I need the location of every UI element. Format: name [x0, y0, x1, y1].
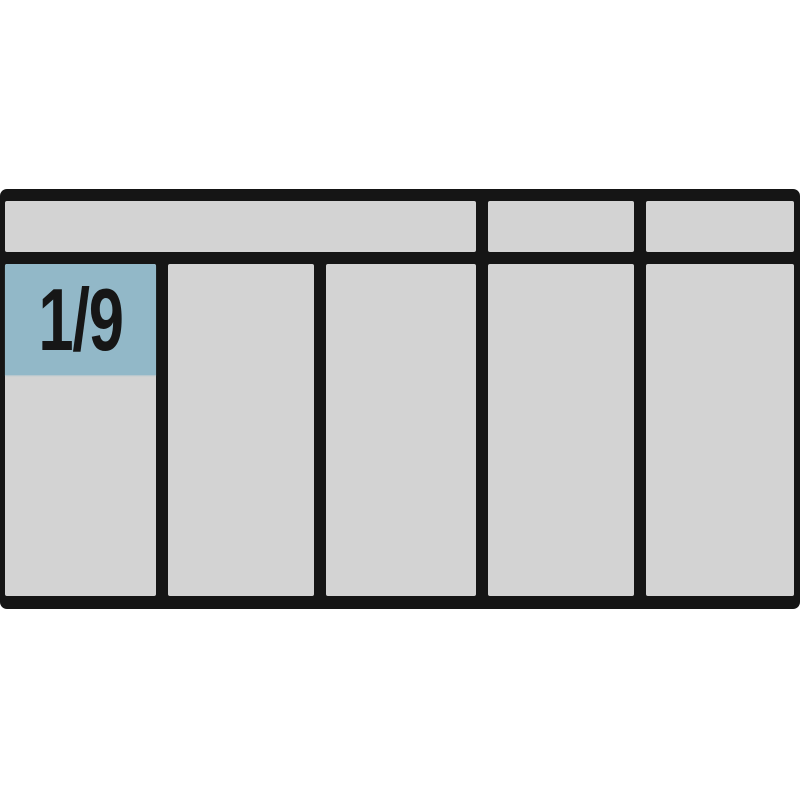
- top-compartment-3: [646, 201, 794, 252]
- tray-label-cell: 1/9: [5, 264, 156, 375]
- main-compartment-3: [326, 264, 476, 596]
- main-compartment-4: [488, 264, 634, 596]
- main-compartment-5: [646, 264, 794, 596]
- top-compartment-2: [488, 201, 634, 252]
- tray-outline: 1/9: [0, 189, 800, 609]
- tool-tray-diagram: 1/9: [0, 0, 800, 800]
- tray-label-text: 1/9: [38, 276, 122, 364]
- main-compartment-2: [168, 264, 314, 596]
- top-compartment-wide: [5, 201, 476, 252]
- main-compartment-1: 1/9: [5, 264, 156, 596]
